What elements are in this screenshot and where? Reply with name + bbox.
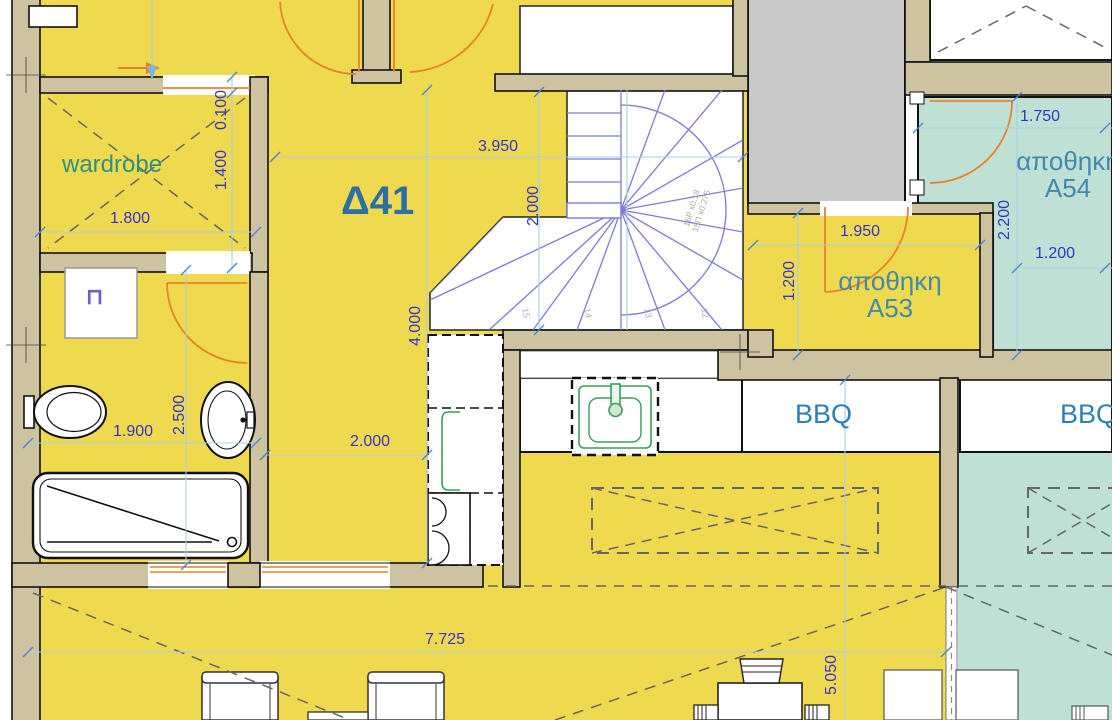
dimension-a53-width: 1.950 [840,223,880,241]
stair-tread-number: 14 [582,307,594,319]
dimension-wardrobe-width: 1.800 [110,210,150,228]
stair-tread-number: 12 [699,307,711,319]
sofa [368,672,444,720]
plan-drawing [0,0,1112,720]
unit-label: Δ41 [341,180,414,222]
dimension-hall-width: 3.950 [478,138,518,156]
floor-plan: wardrobe Δ41 αποθηκη A53 αποθηκη A54 BBQ… [0,0,1112,720]
dimension-stair-width: 2.000 [525,176,543,236]
room-label-bbq-left: BBQ [795,400,852,428]
dimension-bath-length: 2.500 [171,385,189,445]
stair-tread-number: 15 [520,307,532,319]
sofa [202,672,278,720]
stair-tread-number: 13 [642,307,654,319]
elevator-shaft [748,0,905,205]
terrace-chair [1072,706,1108,720]
kitchen-sink [572,378,658,455]
dimension-terrace-depth: 5.050 [823,645,841,705]
balcony-top-right [930,0,1112,60]
dimension-a53-depth: 1.200 [781,251,799,311]
stair-landing [520,6,733,76]
washer-symbol: ⊓ [86,284,103,310]
dimension-a54-depth: 2.200 [996,190,1014,250]
bathtub [33,473,248,558]
room-label-bbq-right: BBQ [1060,400,1112,428]
terrace-railing [946,587,957,720]
kitchen-appliance [428,493,470,565]
lounger [956,670,1018,720]
lounger [884,670,942,720]
bath-sink [201,382,255,458]
dimension-wardrobe-depth: 1.400 [213,140,231,200]
dimension-a54-lower-width: 1.200 [1035,245,1075,263]
dimension-wall-offset: 0.100 [213,80,231,140]
room-label-a53: αποθηκη A53 [825,268,955,323]
dimension-bath-width: 1.900 [113,423,153,441]
room-label-wardrobe: wardrobe [62,152,162,177]
dimension-a54-door-width: 1.750 [1020,108,1060,126]
dimension-hall-lower-width: 2.000 [350,433,390,451]
kitchen-countertop [520,351,718,378]
dimension-hall-length: 4.000 [407,296,425,356]
dimension-terrace-width: 7.725 [425,631,465,649]
room-label-a54: αποθηκη A54 [1008,148,1112,203]
